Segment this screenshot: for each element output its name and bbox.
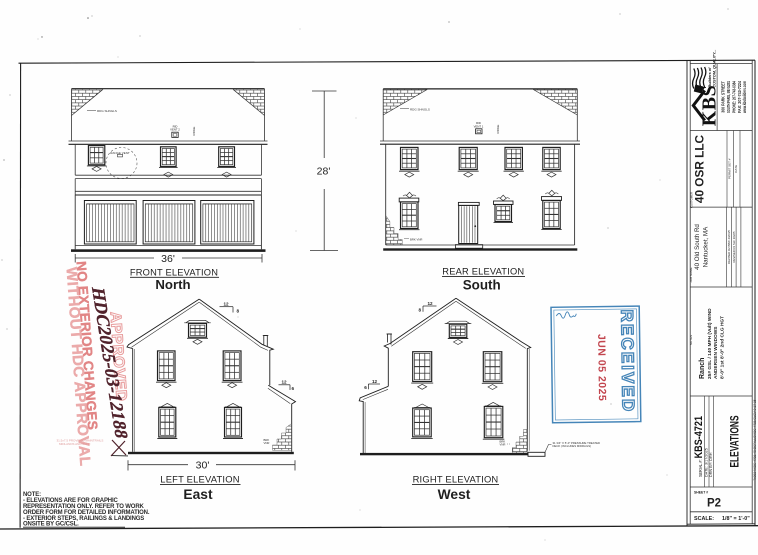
svg-text:Builders of: Builders of xyxy=(708,67,712,88)
svg-text:DECK (INCLUDES MIDRAILS): DECK (INCLUDES MIDRAILS) xyxy=(553,444,592,448)
svg-text:RDG SHNGLS: RDG SHNGLS xyxy=(97,109,117,113)
svg-text:12: 12 xyxy=(223,302,229,307)
svg-text:25# GSL / 140 MPH (Vult) WIND: 25# GSL / 140 MPH (Vult) WIND xyxy=(707,308,713,379)
svg-text:RIDGE: RIDGE xyxy=(496,124,500,133)
svg-text:SCALE:: SCALE: xyxy=(694,516,714,522)
svg-text:FAX: 207-743-7224: FAX: 207-743-7224 xyxy=(737,80,742,113)
svg-text:REAR ELEVATION: REAR ELEVATION xyxy=(442,267,524,277)
svg-text:VNR: VNR xyxy=(500,443,506,447)
svg-text:West: West xyxy=(438,487,471,502)
svg-text:36': 36' xyxy=(161,253,175,265)
svg-text:T:\2024\KBS-4721 40 OSR LLC\KB: T:\2024\KBS-4721 40 OSR LLC\KBS-4721 ELE… xyxy=(753,399,757,480)
svg-text:300 PARK STREET: 300 PARK STREET xyxy=(721,81,726,113)
svg-text:REVISED R3 SLF 3/6/25: REVISED R3 SLF 3/6/25 xyxy=(732,231,736,263)
svg-text:12: 12 xyxy=(427,301,433,306)
svg-text:www.kbsbuilders.com: www.kbsbuilders.com xyxy=(742,81,747,114)
svg-text:8'-0" 1st 8'-0" 2nd CLG HGT: 8'-0" 1st 8'-0" 2nd CLG HGT xyxy=(719,316,725,379)
svg-text:12: 12 xyxy=(281,380,287,385)
svg-text:FRONT ELEVATION: FRONT ELEVATION xyxy=(130,267,218,277)
svg-text:DRN BY: DRH: DRN BY: DRH xyxy=(709,452,713,477)
svg-text:PERMIT SET #: PERMIT SET # xyxy=(728,158,732,179)
svg-text:6: 6 xyxy=(364,385,367,390)
svg-text:Nantucket, MA: Nantucket, MA xyxy=(703,226,710,267)
svg-text:12: 12 xyxy=(372,379,378,384)
svg-text:East: East xyxy=(183,487,213,502)
svg-text:SOUTH PARIS, ME 04281: SOUTH PARIS, ME 04281 xyxy=(726,81,731,113)
svg-text:8: 8 xyxy=(237,308,240,313)
svg-text:40 OSR LLC: 40 OSR LLC xyxy=(693,134,707,203)
svg-text:DATE: DATE xyxy=(734,165,738,173)
svg-text:MIDLANDS AND BDNF: MIDLANDS AND BDNF xyxy=(59,442,91,446)
svg-text:VENT 2: VENT 2 xyxy=(170,128,180,132)
svg-text:SHEET #: SHEET # xyxy=(694,491,708,495)
svg-text:North: North xyxy=(155,277,190,292)
svg-text:VENT 1: VENT 1 xyxy=(474,124,484,128)
svg-text:REVISED R2 BBW 2/20/25: REVISED R2 BBW 2/20/25 xyxy=(727,230,731,264)
svg-text:P2: P2 xyxy=(707,498,721,510)
svg-text:South: South xyxy=(463,277,501,292)
svg-text:NOTES: NOTES xyxy=(689,335,693,345)
svg-text:ELEVATIONS: ELEVATIONS xyxy=(730,415,742,467)
svg-text:JOB NAME: JOB NAME xyxy=(689,267,693,282)
svg-text:CUSTOM, QUALITY...: CUSTOM, QUALITY... xyxy=(712,50,716,88)
svg-text:RECEIVED: RECEIVED xyxy=(617,309,637,413)
svg-text:8: 8 xyxy=(418,308,421,313)
svg-text:DATE: 3/17/2025: DATE: 3/17/2025 xyxy=(705,448,709,477)
svg-text:RIGHT ELEVATION: RIGHT ELEVATION xyxy=(413,474,499,485)
svg-text:28': 28' xyxy=(317,166,331,178)
svg-text:JUN 05 2025: JUN 05 2025 xyxy=(595,334,608,402)
svg-text:Ranch: Ranch xyxy=(699,358,706,379)
svg-text:BRK VNR: BRK VNR xyxy=(410,238,422,242)
svg-text:1/8" = 1'-0": 1/8" = 1'-0" xyxy=(722,516,750,522)
svg-text:6: 6 xyxy=(292,386,295,391)
svg-text:RDG SHNGLS: RDG SHNGLS xyxy=(410,108,430,112)
svg-text:CUSTOMER: CUSTOMER xyxy=(690,192,694,208)
svg-text:40 Old South Rd: 40 Old South Rd xyxy=(694,224,701,270)
svg-text:ANDERSEN WINDOWS: ANDERSEN WINDOWS xyxy=(713,326,719,379)
svg-text:LEFT ELEVATION: LEFT ELEVATION xyxy=(160,474,239,485)
svg-text:PHONE: 207-743-6384: PHONE: 207-743-6384 xyxy=(731,80,736,113)
svg-text:VNR: VNR xyxy=(264,441,270,445)
svg-text:30': 30' xyxy=(196,460,210,472)
svg-text:RIDGE: RIDGE xyxy=(192,126,196,135)
